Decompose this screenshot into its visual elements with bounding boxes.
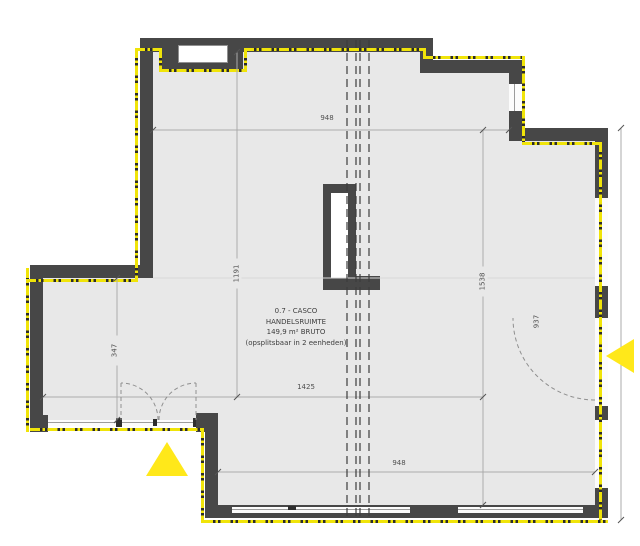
plan-overlay (0, 0, 640, 546)
dim-label-right-door: 937 (533, 307, 542, 337)
entrance-triangle-bottom-icon (146, 442, 188, 476)
room-label: 0.7 - CASCO HANDELSRUIMTE 149,9 m² BRUTO… (216, 306, 376, 348)
floor-plan: 948 1191 1538 347 1425 948 937 0.7 - CAS… (0, 0, 640, 546)
room-id: 0.7 - CASCO (216, 306, 376, 317)
dim-label-bottom-width: 948 (384, 459, 414, 468)
room-note: (opsplitsbaar in 2 eenheden) (216, 338, 376, 349)
entrance-triangle-right-icon (606, 339, 634, 373)
dim-label-right-height: 1538 (479, 267, 488, 297)
room-type: HANDELSRUIMTE (216, 317, 376, 328)
dim-label-upper-left-height: 1191 (233, 259, 242, 289)
dim-label-top-width: 948 (312, 114, 342, 123)
dim-label-middle-width: 1425 (291, 383, 321, 392)
dim-label-lower-left-height: 347 (111, 336, 120, 366)
room-area: 149,9 m² BRUTO (216, 327, 376, 338)
